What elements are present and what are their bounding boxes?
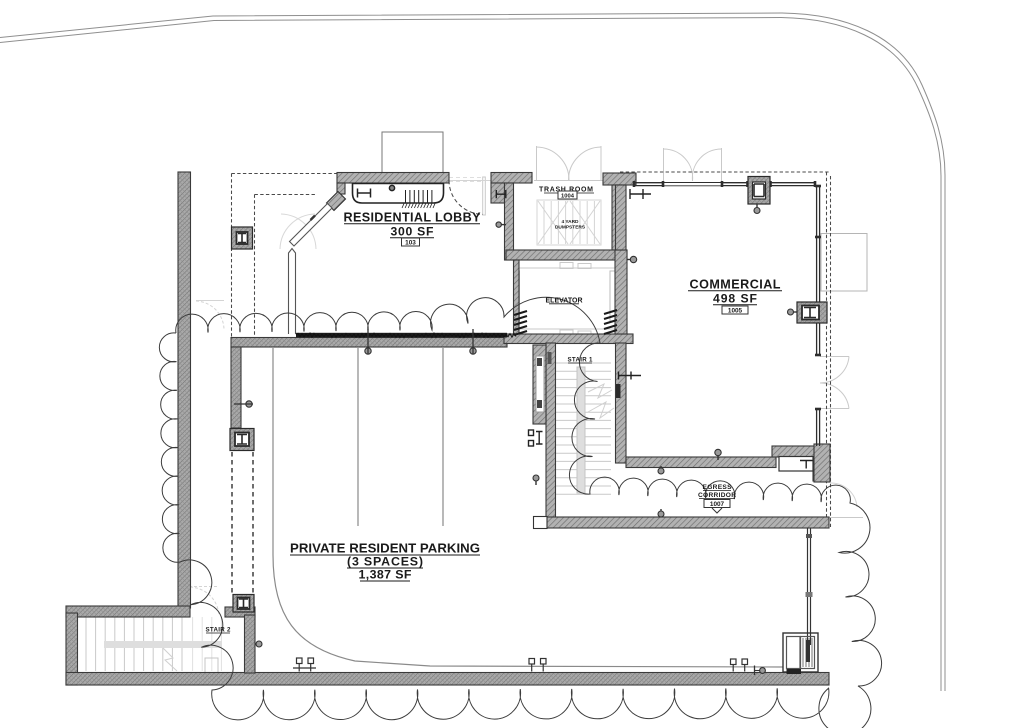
svg-text:PRIVATE RESIDENT PARKING: PRIVATE RESIDENT PARKING bbox=[290, 541, 480, 556]
svg-text:EGRESS: EGRESS bbox=[703, 484, 733, 491]
svg-text:COMMERCIAL: COMMERCIAL bbox=[690, 278, 781, 292]
svg-text:DUMPSTERS: DUMPSTERS bbox=[555, 225, 586, 231]
svg-text:498 SF: 498 SF bbox=[713, 292, 757, 306]
svg-text:(3 SPACES): (3 SPACES) bbox=[347, 555, 423, 569]
svg-text:RESIDENTIAL LOBBY: RESIDENTIAL LOBBY bbox=[344, 211, 482, 225]
svg-text:1,387 SF: 1,387 SF bbox=[359, 568, 412, 582]
svg-text:1007: 1007 bbox=[710, 501, 725, 508]
svg-text:STAIR 1: STAIR 1 bbox=[568, 357, 594, 364]
svg-text:300 SF: 300 SF bbox=[391, 225, 434, 239]
svg-text:STAIR 2: STAIR 2 bbox=[206, 627, 232, 634]
svg-text:4 YARD: 4 YARD bbox=[561, 219, 579, 225]
svg-text:103: 103 bbox=[405, 240, 416, 247]
svg-text:1004: 1004 bbox=[561, 194, 575, 200]
svg-text:1005: 1005 bbox=[728, 308, 743, 315]
svg-text:CORRIDOR: CORRIDOR bbox=[698, 492, 736, 499]
